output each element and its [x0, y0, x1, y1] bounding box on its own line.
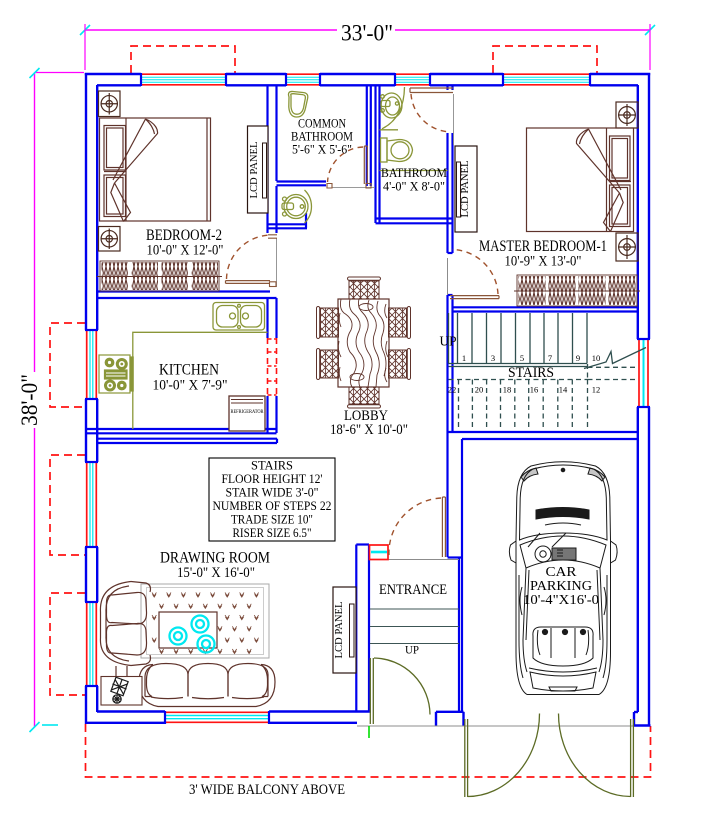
svg-text:KITCHEN: KITCHEN: [159, 362, 219, 379]
svg-text:4'-0" X 8'-0": 4'-0" X 8'-0": [383, 179, 445, 194]
svg-text:38'-0": 38'-0": [17, 374, 42, 426]
svg-text:12: 12: [592, 385, 601, 395]
svg-text:BEDROOM-2: BEDROOM-2: [146, 227, 222, 244]
svg-text:22: 22: [448, 385, 457, 395]
svg-text:UP: UP: [405, 645, 419, 657]
svg-text:16: 16: [530, 385, 539, 395]
svg-text:10'-0" X 12'-0": 10'-0" X 12'-0": [147, 243, 224, 259]
svg-text:STAIRS: STAIRS: [508, 365, 554, 381]
svg-text:5: 5: [520, 353, 524, 363]
svg-text:NUMBER OF STEPS 22: NUMBER OF STEPS 22: [213, 499, 332, 513]
svg-text:18'-6" X 10'-0": 18'-6" X 10'-0": [330, 422, 408, 438]
svg-text:STAIRS: STAIRS: [251, 459, 293, 473]
svg-text:UP: UP: [440, 334, 457, 349]
svg-text:10: 10: [592, 353, 601, 363]
svg-text:PARKING: PARKING: [530, 579, 592, 594]
svg-text:7: 7: [548, 353, 552, 363]
svg-text:LCD PANEL: LCD PANEL: [334, 602, 345, 659]
svg-text:CAR: CAR: [546, 565, 578, 580]
svg-text:TRADE SIZE 10": TRADE SIZE 10": [231, 513, 313, 527]
svg-text:3' WIDE BALCONY ABOVE: 3' WIDE BALCONY ABOVE: [189, 782, 345, 798]
svg-text:1: 1: [462, 353, 466, 363]
svg-text:10'-0" X 7'-9": 10'-0" X 7'-9": [153, 378, 228, 394]
svg-text:10'-9" X 13'-0": 10'-9" X 13'-0": [505, 254, 582, 270]
svg-text:20: 20: [475, 385, 484, 395]
svg-text:ENTRANCE: ENTRANCE: [379, 582, 447, 598]
svg-text:9: 9: [576, 353, 580, 363]
svg-text:10'-4"X16'-0: 10'-4"X16'-0: [523, 593, 599, 608]
svg-text:REFRIGERATOR: REFRIGERATOR: [231, 409, 264, 415]
svg-text:RISER SIZE 6.5": RISER SIZE 6.5": [233, 526, 312, 540]
svg-text:LCD PANEL: LCD PANEL: [460, 161, 471, 218]
svg-text:MASTER BEDROOM-1: MASTER BEDROOM-1: [479, 238, 607, 255]
svg-text:FLOOR HEIGHT 12': FLOOR HEIGHT 12': [222, 472, 323, 486]
svg-text:18: 18: [503, 385, 512, 395]
svg-text:15'-0" X 16'-0": 15'-0" X 16'-0": [177, 565, 255, 581]
svg-text:STAIR WIDE 3'-0": STAIR WIDE 3'-0": [226, 486, 319, 500]
svg-text:33'-0": 33'-0": [341, 21, 393, 46]
svg-text:DRAWING ROOM: DRAWING ROOM: [160, 550, 270, 567]
svg-text:14: 14: [559, 385, 568, 395]
svg-text:3: 3: [491, 353, 495, 363]
svg-text:5'-6" X 5'-6": 5'-6" X 5'-6": [292, 142, 352, 157]
svg-text:LCD PANEL: LCD PANEL: [249, 142, 260, 199]
